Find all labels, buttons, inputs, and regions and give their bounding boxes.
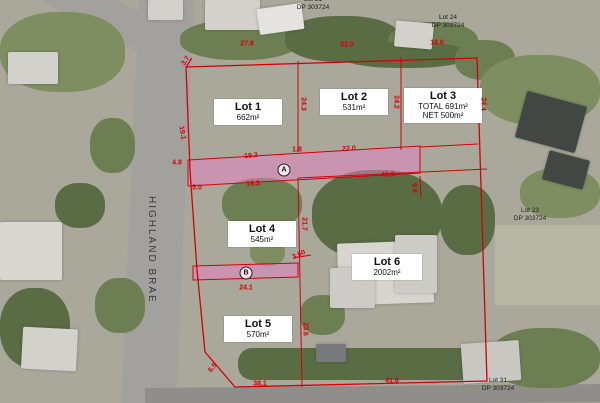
dimension-label: 1.8 bbox=[292, 147, 302, 154]
dimension-label: 19.3 bbox=[246, 180, 260, 188]
lot3-name: Lot 3 bbox=[409, 90, 477, 102]
easement-marker-b: B bbox=[240, 267, 253, 280]
dimension-label: 22.0 bbox=[340, 42, 354, 49]
dimension-label: 41.6 bbox=[381, 171, 395, 179]
dimension-label: 18.0 bbox=[430, 40, 444, 47]
adjacent-lot23-dp: DP 303724 bbox=[500, 215, 560, 223]
adjacent-lot31-label: Lot 31 DP 303724 bbox=[468, 377, 528, 392]
lot2-label: Lot 2 531m² bbox=[320, 89, 388, 115]
lot3-area-net: NET 500m² bbox=[409, 111, 477, 120]
dimension-label: 38.1 bbox=[253, 381, 267, 388]
lot1-area: 662m² bbox=[219, 113, 277, 122]
survey-boundary-lines bbox=[0, 0, 600, 403]
adjacent-lot21-label: Lot 21 DP 303724 bbox=[283, 0, 343, 11]
lot1-name: Lot 1 bbox=[219, 101, 277, 113]
dimension-label: 9.6 bbox=[410, 183, 418, 193]
easement-marker-a: A bbox=[278, 164, 291, 177]
adjacent-lot23-name: Lot 23 bbox=[500, 207, 560, 215]
adjacent-lot23-label: Lot 23 DP 303724 bbox=[500, 207, 560, 222]
lot5-label: Lot 5 570m² bbox=[224, 316, 292, 342]
adjacent-lot31-dp: DP 303724 bbox=[468, 385, 528, 393]
easement-strip-a bbox=[188, 146, 420, 186]
adjacent-lot31-name: Lot 31 bbox=[468, 377, 528, 385]
lot3-label: Lot 3 TOTAL 691m² NET 500m² bbox=[404, 88, 482, 123]
dimension-label: 24.3 bbox=[300, 97, 307, 111]
dimension-label: 5.0 bbox=[192, 185, 202, 192]
lot3-bottom-boundary bbox=[420, 144, 478, 147]
lot2-area: 531m² bbox=[325, 103, 383, 112]
lot6-name: Lot 6 bbox=[357, 256, 417, 268]
subdivision-plan-map: Lot 1 662m² Lot 2 531m² Lot 3 TOTAL 691m… bbox=[0, 0, 600, 403]
lot5-area: 570m² bbox=[229, 330, 287, 339]
dimension-label: 27.8 bbox=[240, 41, 254, 48]
adjacent-lot24-name: Lot 24 bbox=[418, 14, 478, 22]
dimension-label: 41.6 bbox=[385, 378, 399, 385]
dimension-label: 24.1 bbox=[239, 285, 253, 292]
dimension-label: 21.7 bbox=[301, 217, 308, 231]
lot4-name: Lot 4 bbox=[233, 223, 291, 235]
lot4-lot6-boundary bbox=[298, 178, 302, 387]
lot5-name: Lot 5 bbox=[229, 318, 287, 330]
adjacent-lot21-dp: DP 303724 bbox=[283, 4, 343, 12]
dimension-label: 23.6 bbox=[302, 322, 309, 336]
lot1-label: Lot 1 662m² bbox=[214, 99, 282, 125]
lot3-area-total: TOTAL 691m² bbox=[409, 102, 477, 111]
dimension-label: 24.4 bbox=[480, 97, 487, 111]
dimension-label: 4.8 bbox=[172, 160, 182, 167]
lot2-name: Lot 2 bbox=[325, 91, 383, 103]
lot4-area: 545m² bbox=[233, 235, 291, 244]
dimension-label: 22.0 bbox=[342, 145, 356, 153]
road-name-label: HIGHLAND BRAE bbox=[146, 196, 157, 304]
lot4-label: Lot 4 545m² bbox=[228, 221, 296, 247]
dimension-label: 19.2 bbox=[244, 152, 258, 160]
adjacent-lot24-label: Lot 24 DP 303724 bbox=[418, 14, 478, 29]
dimension-label: 24.2 bbox=[393, 95, 400, 109]
lot6-area: 2002m² bbox=[357, 268, 417, 277]
adjacent-lot24-dp: DP 303724 bbox=[418, 22, 478, 30]
easement-end-tie bbox=[420, 176, 421, 198]
lot6-label: Lot 6 2002m² bbox=[352, 254, 422, 280]
